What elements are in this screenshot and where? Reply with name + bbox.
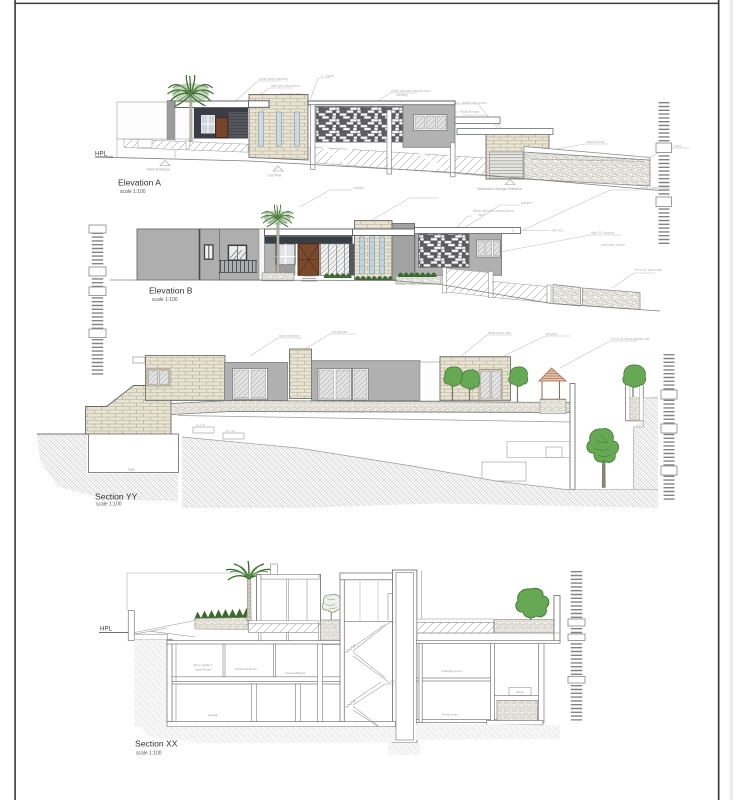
svg-text:skylight: skylight	[353, 186, 364, 190]
svg-text:Elevation A: Elevation A	[118, 178, 161, 188]
svg-text:40 cm th' stone wall: 40 cm th' stone wall	[634, 268, 662, 272]
svg-text:40 cm th' stone garden wall: 40 cm th' stone garden wall	[611, 337, 650, 341]
svg-text:HPL: HPL	[95, 151, 108, 158]
svg-text:White clay blocks: White clay blocks	[462, 101, 487, 105]
svg-text:wc 1.20: wc 1.20	[226, 429, 235, 433]
svg-text:white stone cladding: white stone cladding	[259, 77, 288, 81]
svg-text:clad: clad	[478, 213, 484, 217]
svg-text:Main Entrance: Main Entrance	[147, 168, 170, 172]
svg-text:parapet: parapet	[521, 201, 532, 205]
svg-text:Ramp: Ramp	[516, 690, 525, 694]
svg-text:pergola: pergola	[546, 332, 557, 336]
svg-text:dark RC window: dark RC window	[591, 231, 615, 235]
svg-text:Car Port: Car Port	[268, 174, 281, 178]
svg-text:scale 1:100: scale 1:100	[152, 297, 178, 303]
svg-text:scale 1:100: scale 1:100	[96, 502, 122, 508]
svg-text:scale 1:100: scale 1:100	[136, 751, 162, 757]
svg-text:cladding: cladding	[396, 93, 408, 97]
svg-text:Section XX: Section XX	[135, 739, 178, 749]
svg-text:Pump room: Pump room	[442, 713, 458, 717]
svg-text:Garage: Garage	[208, 713, 219, 717]
svg-text:C. Signal: C. Signal	[321, 74, 334, 78]
svg-text:Technical Room: Technical Room	[235, 667, 257, 671]
svg-text:HPL: HPL	[100, 626, 113, 633]
svg-text:White Render: White Render	[460, 110, 480, 114]
svg-text:dark grey aluminium: dark grey aluminium	[271, 84, 300, 88]
svg-text:wc 1.20: wc 1.20	[196, 423, 205, 427]
svg-text:Cigar Room: Cigar Room	[195, 668, 212, 672]
svg-text:Elevation B: Elevation B	[149, 286, 193, 296]
svg-text:stone chimney: stone chimney	[279, 334, 300, 338]
svg-text:Gym: Gym	[128, 468, 135, 472]
svg-text:scale 1:100: scale 1:100	[120, 189, 146, 195]
svg-text:flat roof: flat roof	[552, 229, 563, 233]
svg-text:Changing room: Changing room	[441, 669, 463, 673]
svg-text:Section YY: Section YY	[95, 492, 138, 502]
svg-text:Wine Cellar &: Wine Cellar &	[194, 663, 214, 667]
svg-text:natural stone: natural stone	[586, 140, 605, 144]
svg-text:white stone wall: white stone wall	[488, 331, 511, 335]
svg-text:roof garden: roof garden	[331, 330, 348, 334]
svg-text:Cinema/Board: Cinema/Board	[285, 671, 305, 675]
svg-text:Basement Garage Entrance: Basement Garage Entrance	[478, 187, 523, 191]
svg-text:wall finish render: wall finish render	[601, 243, 626, 247]
svg-text:white painted plaster: white painted plaster	[641, 186, 671, 190]
